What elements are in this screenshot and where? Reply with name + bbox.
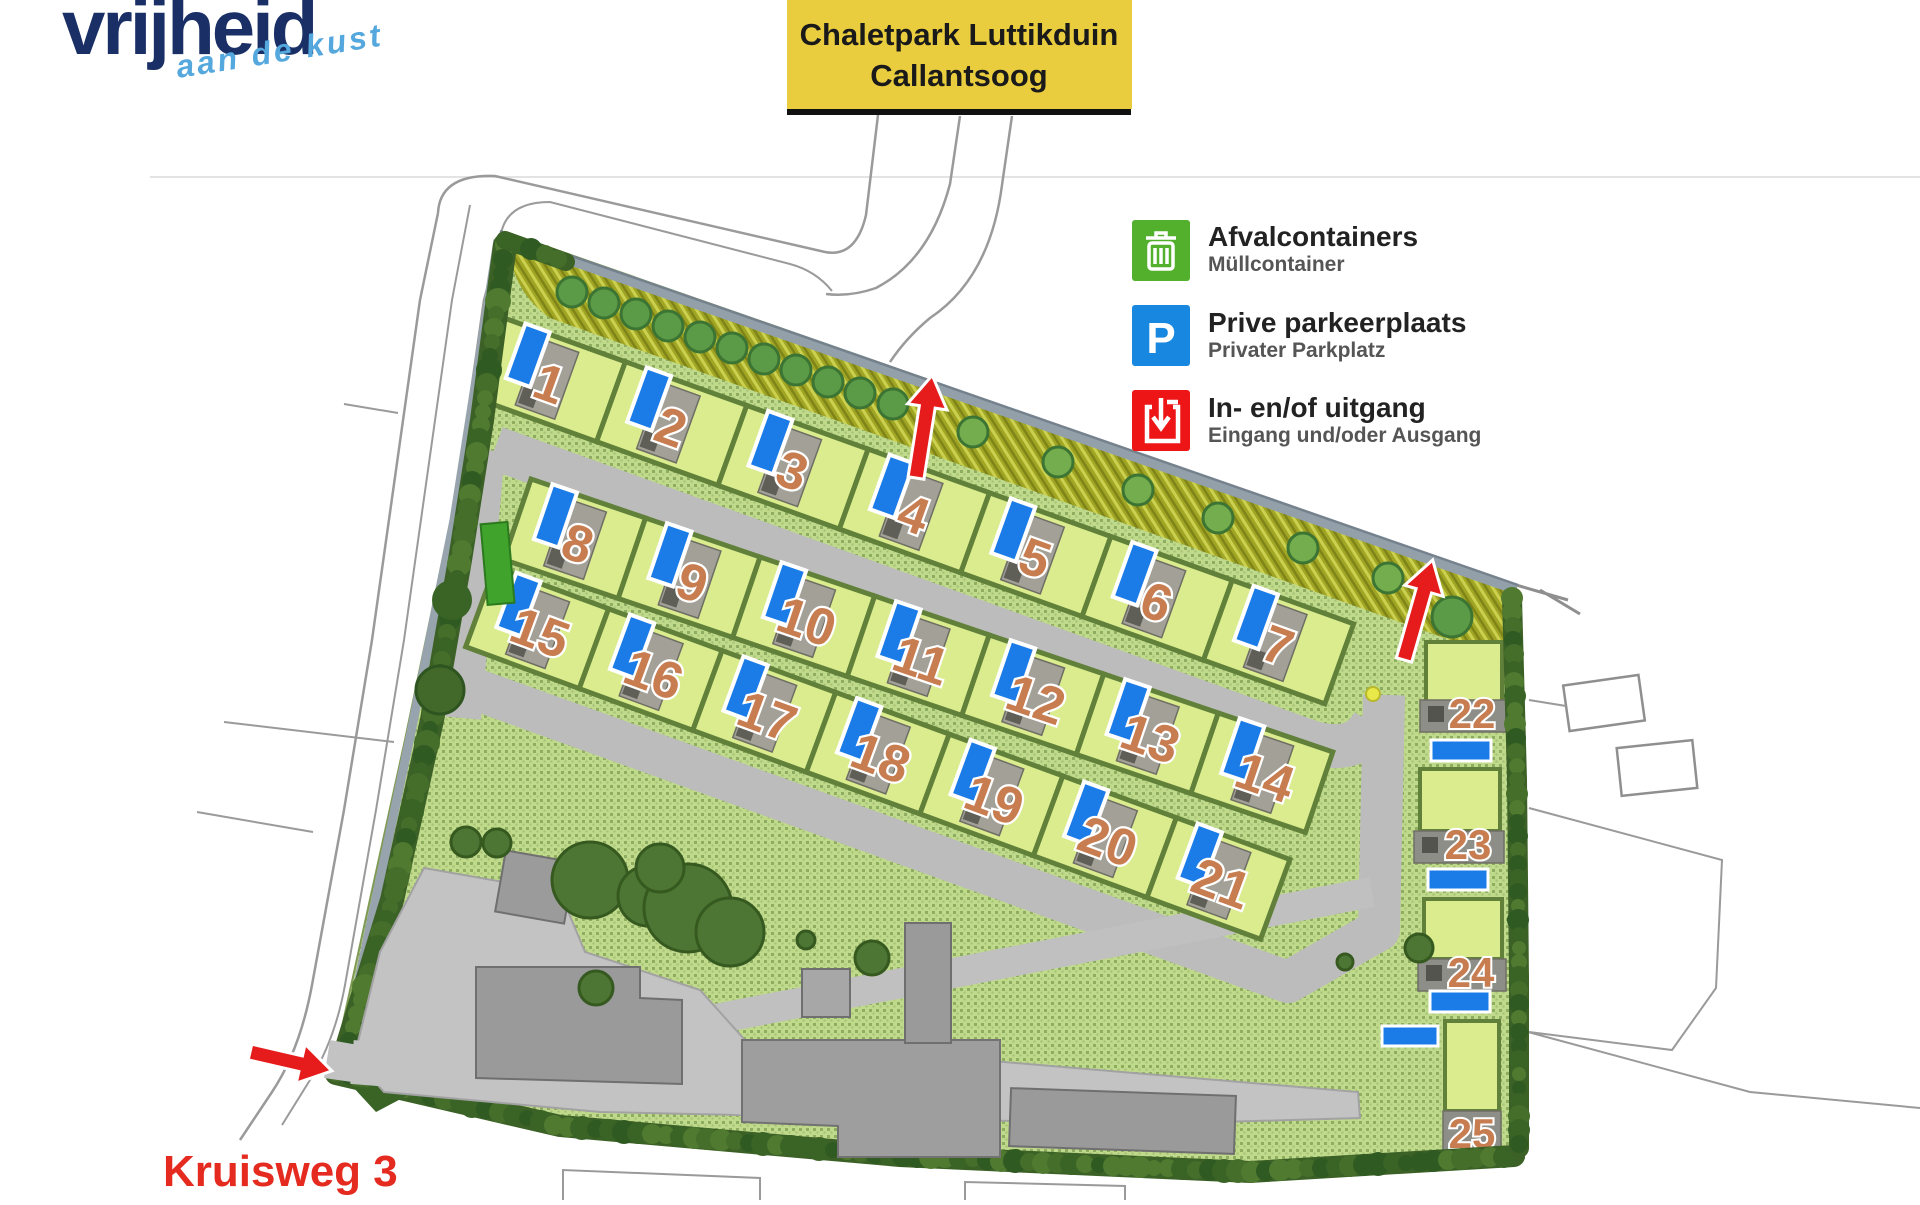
svg-text:Privater Parkplatz: Privater Parkplatz (1208, 339, 1385, 362)
svg-text:Eingang und/oder Ausgang: Eingang und/oder Ausgang (1208, 424, 1481, 447)
svg-text:Chaletpark Luttikduin: Chaletpark Luttikduin (800, 17, 1119, 52)
svg-text:In- en/of uitgang: In- en/of uitgang (1208, 392, 1426, 423)
svg-text:Prive parkeerplaats: Prive parkeerplaats (1208, 307, 1466, 338)
svg-text:24: 24 (1448, 949, 1495, 996)
svg-text:23: 23 (1445, 821, 1492, 868)
svg-text:Müllcontainer: Müllcontainer (1208, 253, 1345, 276)
svg-text:22: 22 (1449, 690, 1496, 737)
svg-text:P: P (1146, 314, 1175, 363)
svg-text:Afvalcontainers: Afvalcontainers (1208, 221, 1418, 252)
svg-text:Kruisweg 3: Kruisweg 3 (163, 1147, 398, 1196)
svg-text:Callantsoog: Callantsoog (870, 58, 1047, 93)
